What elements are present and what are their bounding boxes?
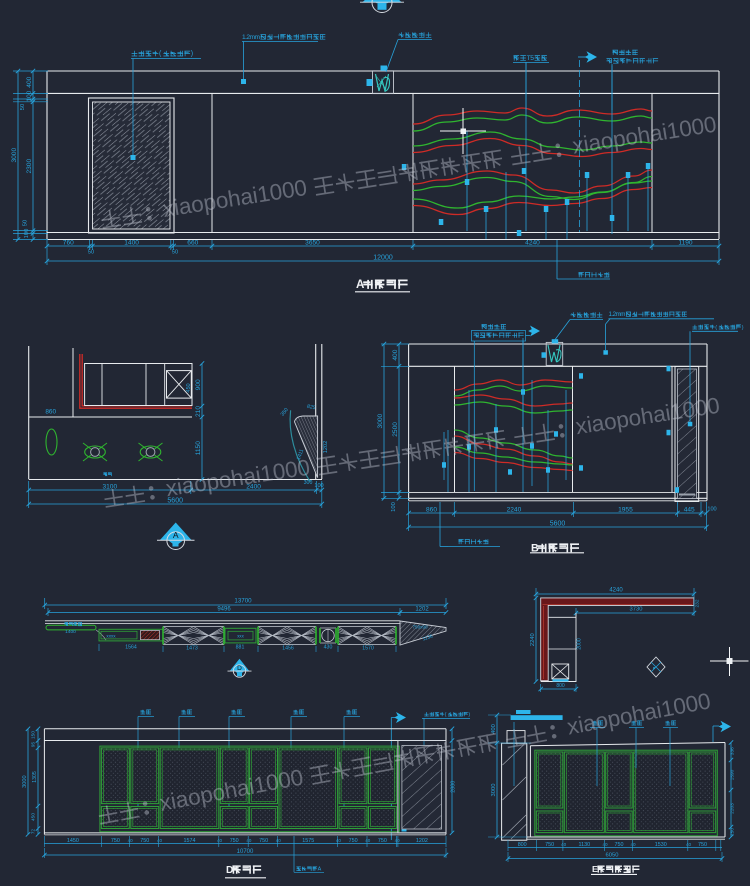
svg-text:40: 40 xyxy=(157,838,163,843)
svg-text:750: 750 xyxy=(230,838,239,844)
svg-text:2240: 2240 xyxy=(507,506,522,513)
svg-text:100: 100 xyxy=(707,507,716,513)
svg-text:750: 750 xyxy=(698,842,707,848)
svg-text:40: 40 xyxy=(686,842,692,847)
svg-text:3000: 3000 xyxy=(377,413,384,428)
svg-text:xxx: xxx xyxy=(237,634,244,639)
svg-text:232: 232 xyxy=(695,599,701,607)
svg-text:150: 150 xyxy=(31,731,37,739)
svg-text:50: 50 xyxy=(172,250,178,256)
svg-text:T5: T5 xyxy=(527,55,535,62)
svg-text:430: 430 xyxy=(324,645,333,651)
svg-text:4240: 4240 xyxy=(525,239,540,246)
svg-text:3000: 3000 xyxy=(491,784,497,797)
svg-text:750: 750 xyxy=(259,838,268,844)
svg-text:40: 40 xyxy=(395,838,401,843)
svg-text:1574: 1574 xyxy=(184,838,196,844)
svg-text:750: 750 xyxy=(378,838,387,844)
svg-text:E: E xyxy=(592,864,598,874)
svg-text:10700: 10700 xyxy=(237,849,254,855)
svg-text:3730: 3730 xyxy=(630,607,643,613)
svg-text:2500: 2500 xyxy=(392,422,399,437)
svg-text:5600: 5600 xyxy=(550,520,566,527)
svg-text:1.2mm: 1.2mm xyxy=(242,34,261,41)
svg-text:1590: 1590 xyxy=(730,769,736,780)
svg-text:1305: 1305 xyxy=(32,771,38,783)
svg-text:750: 750 xyxy=(111,838,120,844)
svg-text:100: 100 xyxy=(24,229,30,239)
svg-text:100: 100 xyxy=(314,483,323,489)
svg-text:A: A xyxy=(173,530,179,540)
svg-text:1190: 1190 xyxy=(678,239,693,246)
svg-text:6050: 6050 xyxy=(606,853,619,859)
svg-text:860: 860 xyxy=(426,506,437,513)
svg-text:900: 900 xyxy=(195,379,202,390)
svg-text:(: ( xyxy=(445,712,447,718)
svg-text:750x90: 750x90 xyxy=(412,625,428,630)
svg-text:72: 72 xyxy=(31,829,36,835)
svg-text:50: 50 xyxy=(23,220,29,226)
svg-text:2240: 2240 xyxy=(530,633,536,646)
svg-text:760: 760 xyxy=(63,239,74,246)
svg-text:1400: 1400 xyxy=(65,629,76,635)
svg-text:450: 450 xyxy=(186,383,192,392)
svg-text:860: 860 xyxy=(45,409,56,416)
svg-text:12000: 12000 xyxy=(373,254,393,261)
svg-text:13700: 13700 xyxy=(234,598,252,605)
svg-text:660: 660 xyxy=(187,239,198,246)
svg-text:800: 800 xyxy=(556,683,565,689)
svg-text:3100: 3100 xyxy=(102,483,117,490)
svg-text:(: ( xyxy=(715,325,717,331)
svg-text:3000: 3000 xyxy=(22,775,28,787)
svg-text:2300: 2300 xyxy=(26,159,33,174)
svg-text:336: 336 xyxy=(730,747,736,755)
svg-text:150: 150 xyxy=(730,828,736,836)
svg-text:3650: 3650 xyxy=(305,239,320,246)
svg-text:1570: 1570 xyxy=(362,646,374,652)
svg-text:2800: 2800 xyxy=(451,781,457,793)
svg-text:300: 300 xyxy=(304,480,313,486)
svg-text:50: 50 xyxy=(88,250,94,256)
svg-text:750: 750 xyxy=(545,842,554,848)
svg-text:450: 450 xyxy=(31,813,37,821)
svg-text:750: 750 xyxy=(140,838,149,844)
svg-text:1150: 1150 xyxy=(195,441,202,456)
svg-text:2203: 2203 xyxy=(730,803,736,814)
svg-text:100: 100 xyxy=(26,90,33,101)
svg-text:100: 100 xyxy=(391,502,397,512)
svg-text:40: 40 xyxy=(217,838,223,843)
svg-text:881: 881 xyxy=(236,645,245,651)
svg-text:): ) xyxy=(191,51,193,58)
svg-text:D: D xyxy=(226,865,233,876)
svg-text:1456: 1456 xyxy=(282,646,294,652)
svg-text:1575: 1575 xyxy=(302,838,314,844)
svg-text:D: D xyxy=(237,665,242,672)
svg-text:750: 750 xyxy=(615,842,624,848)
svg-text:1400: 1400 xyxy=(124,239,139,246)
svg-text:1130: 1130 xyxy=(579,842,591,848)
svg-text:1202: 1202 xyxy=(323,441,329,453)
svg-text:): ) xyxy=(742,325,744,331)
svg-text:750: 750 xyxy=(349,838,358,844)
svg-text:1202: 1202 xyxy=(415,607,429,613)
svg-text:1955: 1955 xyxy=(618,506,633,513)
svg-text:40: 40 xyxy=(365,838,371,843)
svg-text:xxxx: xxxx xyxy=(106,634,116,639)
svg-text:800: 800 xyxy=(518,842,527,848)
svg-text:40: 40 xyxy=(128,838,134,843)
svg-text:40: 40 xyxy=(602,842,608,847)
svg-text:1202: 1202 xyxy=(416,838,428,844)
svg-text:1450: 1450 xyxy=(67,838,79,844)
svg-text:2000: 2000 xyxy=(577,638,583,650)
svg-text:1564: 1564 xyxy=(125,645,137,651)
svg-text:40: 40 xyxy=(276,838,282,843)
svg-text:3000: 3000 xyxy=(11,148,18,163)
svg-text:): ) xyxy=(468,712,470,718)
svg-text:9496: 9496 xyxy=(217,607,231,613)
svg-text:1.2mm: 1.2mm xyxy=(609,311,626,318)
svg-text:1473: 1473 xyxy=(186,646,198,652)
svg-text:A: A xyxy=(318,866,322,872)
svg-text:400: 400 xyxy=(392,349,399,360)
svg-text:4240: 4240 xyxy=(609,588,623,594)
svg-text:40: 40 xyxy=(561,842,567,847)
svg-text:40: 40 xyxy=(630,842,636,847)
svg-text:50: 50 xyxy=(20,104,26,110)
svg-text:95: 95 xyxy=(31,742,36,748)
svg-text:210: 210 xyxy=(195,406,202,417)
svg-text:40: 40 xyxy=(336,838,342,843)
svg-text:40: 40 xyxy=(246,838,252,843)
svg-text:1530: 1530 xyxy=(655,842,667,848)
svg-text:445: 445 xyxy=(684,506,695,513)
svg-text:400: 400 xyxy=(26,76,33,87)
